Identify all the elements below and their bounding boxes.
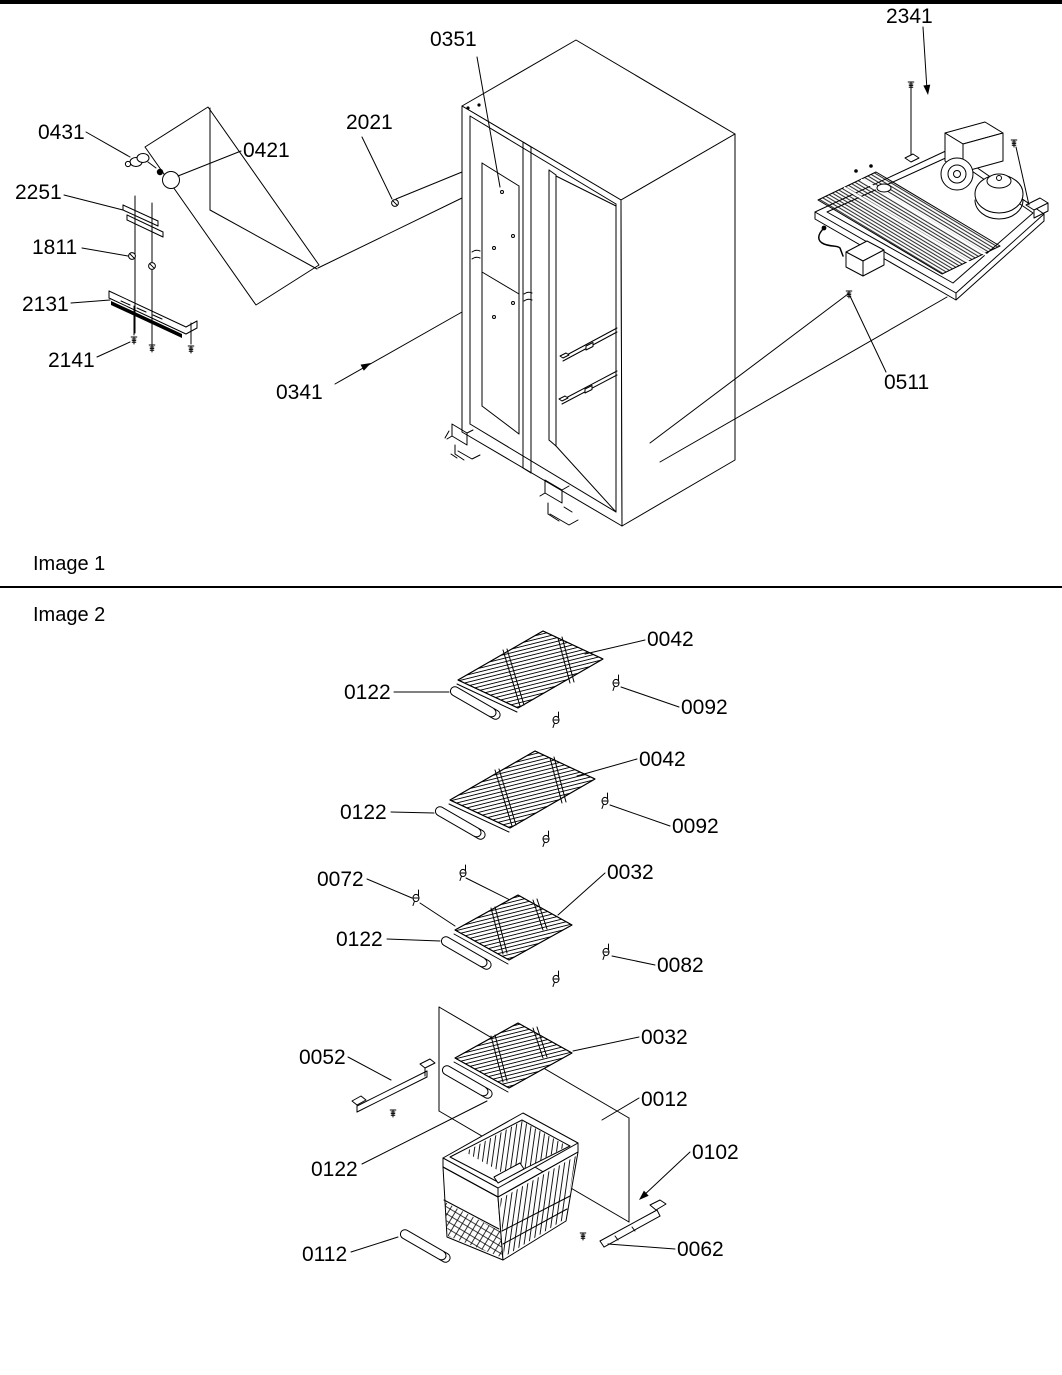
part-number-0082: 0082 [657,954,704,977]
part-number-0341: 0341 [276,381,323,404]
shelf3-clip-rear-left [413,890,419,906]
wire-shelf-2 [449,751,595,832]
part-number-1811: 1811 [32,236,77,259]
callout-0511: 0511 [850,296,929,394]
callout-0072: 0072 [317,868,412,898]
shelf3-clip-front-right [603,944,609,960]
freezer-basket [443,1113,578,1260]
callout-0052: 0052 [299,1046,391,1080]
shelf4-rail [352,1059,435,1117]
part-number-0421: 0421 [243,139,290,162]
callout-0042-shelf1: 0042 [585,628,694,654]
part-number-0511: 0511 [884,371,929,394]
basket-rail [580,1200,666,1247]
shelf3-clip-front-left [553,971,559,987]
callout-0032-shelf3: 0032 [558,861,654,915]
part-number-0012: 0012 [641,1088,688,1111]
light-bulb [157,169,180,189]
part-number-2341: 2341 [886,5,933,28]
part-number-0032-1: 0032 [607,861,654,884]
shield-screw-upper2 [149,263,156,270]
callout-0122-shelf1: 0122 [344,681,449,704]
power-cord [819,226,843,256]
part-number-0431: 0431 [38,121,85,144]
shield-screw-lower3 [188,346,194,353]
parts-diagram-svg: 0431 0421 2251 1811 2131 [0,0,1062,1375]
callout-0341: 0341 [276,312,462,404]
callout-0092-shelf2: 0092 [610,805,719,838]
part-number-0351: 0351 [430,28,477,51]
shelf3-clip-rear-right [460,865,466,881]
shield-screw-upper [129,253,136,260]
callout-0122-shelf3: 0122 [336,928,440,951]
light-shield [109,291,197,338]
shield-screw-lower1 [131,337,137,344]
part-number-0102: 0102 [692,1141,739,1164]
light-cover-panel [145,107,319,305]
part-number-0122-2: 0122 [340,801,387,824]
shelf2-clip-right [602,793,608,809]
callout-1811: 1811 [32,236,128,259]
machine-screw-part2 [1011,140,1017,147]
cabinet-right-side [621,134,735,526]
part-number-2141: 2141 [48,349,95,372]
part-number-0052: 0052 [299,1046,346,1069]
top-border [0,0,1062,4]
callout-0431: 0431 [38,121,130,157]
part-number-2131: 2131 [22,293,69,316]
assembly-guide-line [318,198,462,268]
machine-screw-part [908,82,914,89]
assembly-guide-line [396,172,462,199]
callout-0012: 0012 [602,1088,688,1120]
part-number-0122-4: 0122 [311,1158,358,1181]
part-number-0092-1: 0092 [681,696,728,719]
part-number-2021: 2021 [346,111,393,134]
diagram-page: 0431 0421 2251 1811 2131 [0,0,1062,1375]
part-number-2251: 2251 [15,181,62,204]
shield-screw-lower2 [149,345,155,352]
callout-0102: 0102 [637,1141,739,1203]
callout-2131: 2131 [22,293,110,316]
part-number-0072: 0072 [317,868,364,891]
part-number-0042-2: 0042 [639,748,686,771]
image1-section: 0431 0421 2251 1811 2131 [15,5,1048,575]
part-number-0092-2: 0092 [672,815,719,838]
shelf2-clip-front [543,831,549,847]
part-number-0122-3: 0122 [336,928,383,951]
callout-0122-shelf4: 0122 [311,1101,487,1181]
callout-0092-shelf1: 0092 [621,687,728,719]
callout-2251: 2251 [15,181,123,210]
callout-0032-shelf4: 0032 [573,1026,688,1051]
part-number-0122-1: 0122 [344,681,391,704]
light-shield-bracket [123,205,163,237]
image2-section: Image 2 [33,604,739,1266]
part-number-0032-2: 0032 [641,1026,688,1049]
callout-0082: 0082 [612,954,704,977]
callout-2021: 2021 [346,111,398,206]
callout-0122-shelf2: 0122 [340,801,434,824]
plate-hole [877,184,891,192]
image2-title: Image 2 [33,604,105,626]
shelf1-clip-front [553,712,559,728]
shelf1-clip-right [613,675,619,691]
refrigerator-cabinet [445,40,735,526]
image1-title: Image 1 [33,553,105,575]
callout-0042-shelf2: 0042 [577,748,686,776]
callout-0062: 0062 [608,1238,724,1261]
basket-trim [399,1228,452,1264]
part-number-0062: 0062 [677,1238,724,1261]
callout-0112: 0112 [302,1237,398,1266]
callout-2141: 2141 [48,342,130,372]
part-number-0042-1: 0042 [647,628,694,651]
part-number-0112: 0112 [302,1243,347,1266]
